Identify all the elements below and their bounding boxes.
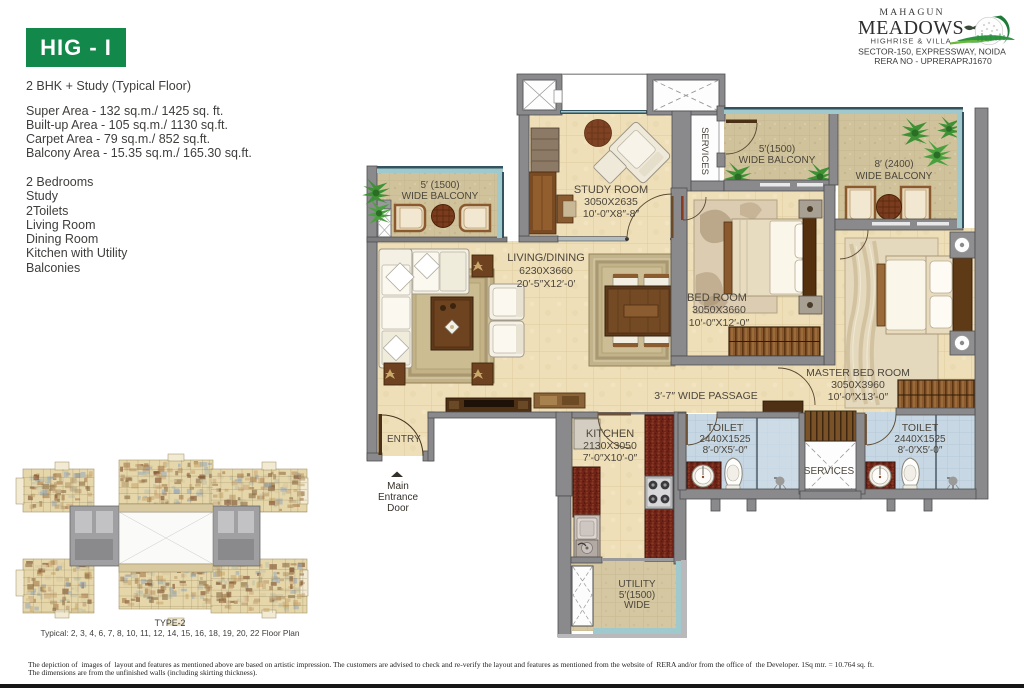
svg-text:LIVING/DINING: LIVING/DINING: [507, 252, 585, 264]
svg-text:3′-7″ WIDE PASSAGE: 3′-7″ WIDE PASSAGE: [654, 390, 758, 402]
svg-text:2440X1525: 2440X1525: [894, 434, 946, 445]
svg-text:WIDE BALCONY: WIDE BALCONY: [856, 171, 933, 182]
svg-text:5′ (1500): 5′ (1500): [420, 180, 459, 191]
svg-text:10′-0″X13′-0″: 10′-0″X13′-0″: [828, 391, 889, 403]
svg-text:10′-0″X8″-8″: 10′-0″X8″-8″: [583, 208, 640, 220]
svg-text:8′-0′X5′-0″: 8′-0′X5′-0″: [703, 445, 748, 456]
svg-text:WIDE BALCONY: WIDE BALCONY: [739, 155, 816, 166]
svg-text:6230X3660: 6230X3660: [519, 265, 573, 277]
svg-text:7′-0″X10′-0″: 7′-0″X10′-0″: [583, 452, 638, 464]
svg-text:TOILET: TOILET: [707, 422, 744, 434]
svg-text:TOILET: TOILET: [902, 422, 939, 434]
svg-text:Entrance: Entrance: [378, 492, 418, 503]
svg-text:10′-0″X12′-0″: 10′-0″X12′-0″: [689, 317, 750, 329]
svg-text:UTILITY: UTILITY: [618, 579, 656, 590]
svg-text:MASTER BED ROOM: MASTER BED ROOM: [806, 367, 910, 379]
svg-text:WIDE BALCONY: WIDE BALCONY: [402, 191, 479, 202]
svg-text:8′-0′X5′-0″: 8′-0′X5′-0″: [898, 445, 943, 456]
svg-text:3050X3660: 3050X3660: [692, 304, 746, 316]
svg-text:STUDY ROOM: STUDY ROOM: [574, 184, 648, 196]
svg-text:SERVICES: SERVICES: [804, 466, 855, 477]
svg-text:2440X1525: 2440X1525: [699, 434, 751, 445]
svg-text:3050X3960: 3050X3960: [831, 379, 885, 391]
svg-text:3050X2635: 3050X2635: [584, 196, 638, 208]
svg-text:WIDE: WIDE: [624, 600, 650, 611]
svg-text:Main: Main: [387, 481, 409, 492]
svg-text:Door: Door: [387, 503, 409, 514]
svg-text:ENTRY: ENTRY: [387, 434, 421, 445]
svg-text:8′ (2400): 8′ (2400): [874, 159, 913, 170]
svg-text:20′-5″X12′-0′: 20′-5″X12′-0′: [517, 278, 576, 290]
svg-text:SERVICES: SERVICES: [699, 127, 710, 175]
svg-text:5′(1500): 5′(1500): [759, 144, 795, 155]
svg-text:BED ROOM: BED ROOM: [687, 292, 747, 304]
svg-text:KITCHEN: KITCHEN: [586, 428, 634, 440]
svg-text:2130X3050: 2130X3050: [583, 440, 637, 452]
